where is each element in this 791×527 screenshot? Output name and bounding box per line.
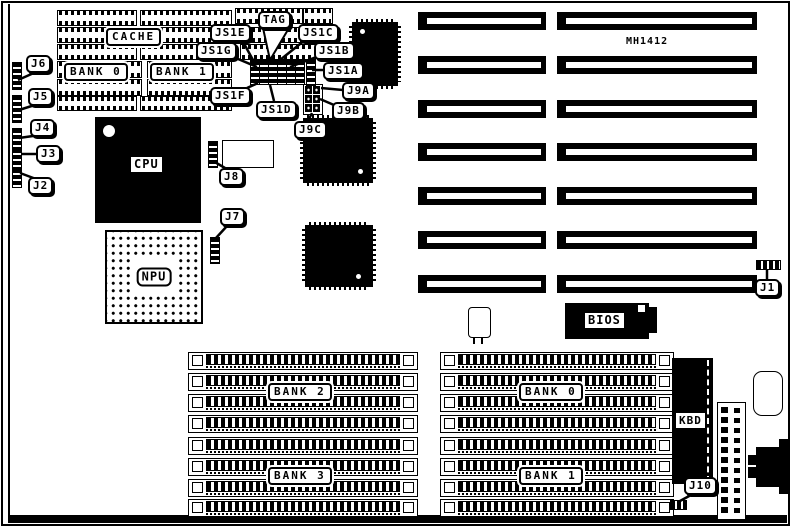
jumper-js1a (306, 59, 316, 86)
cache-bank1-label: BANK 1 (150, 63, 214, 81)
callout-j9c: J9C (294, 121, 327, 139)
isa-slot (418, 275, 546, 293)
callout-j1: J1 (755, 279, 780, 297)
qfp-chip (305, 225, 373, 287)
callout-j2: J2 (28, 177, 53, 195)
isa-slot (557, 275, 757, 293)
jumper-j3 (12, 148, 22, 168)
motherboard-diagram: CPU NPU MH1412 BIOS (0, 0, 791, 527)
jumper-j2 (12, 168, 22, 188)
simm-bank1-label: BANK 1 (519, 467, 583, 485)
simm-socket (440, 352, 674, 370)
cache-bank0-label: BANK 0 (64, 63, 128, 81)
connector-outline (753, 371, 783, 416)
callout-j3: J3 (36, 145, 61, 163)
simm-socket (188, 415, 418, 433)
bios-chip-tab (649, 307, 657, 333)
jumper-j1 (756, 260, 781, 270)
jumper-j10 (670, 500, 687, 510)
callout-js1g: JS1G (196, 42, 237, 60)
cache-label: CACHE (106, 28, 161, 46)
isa-slot (418, 187, 546, 205)
isa-slot (418, 143, 546, 161)
pin-header (717, 402, 746, 520)
jumper-j8 (208, 141, 218, 168)
callout-js1b: JS1B (314, 42, 355, 60)
keyboard-connector (756, 447, 789, 487)
jumper-j4 (12, 128, 22, 148)
simm-socket (440, 499, 674, 517)
isa-slot (557, 12, 757, 30)
simm-socket (188, 437, 418, 455)
connector-pin (748, 467, 757, 478)
jumper-js1 (295, 60, 305, 85)
isa-slot (557, 56, 757, 74)
jumper-j5 (12, 95, 22, 123)
pin1-marker (103, 125, 115, 137)
board-model-text: MH1412 (626, 36, 668, 47)
callout-j5: J5 (28, 88, 53, 106)
simm-socket (440, 415, 674, 433)
callout-js1d: JS1D (256, 101, 297, 119)
isa-slot (557, 143, 757, 161)
dip-chip (57, 44, 137, 60)
callout-js1e: JS1E (210, 24, 251, 42)
jumper-j7 (210, 237, 220, 264)
isa-slot (418, 12, 546, 30)
callout-js1a: JS1A (323, 62, 364, 80)
npu-socket: NPU (105, 230, 203, 324)
callout-j8: J8 (219, 168, 244, 186)
bios-label: BIOS (584, 312, 625, 329)
jumper-block-j9 (303, 84, 323, 115)
dip-chip (57, 96, 137, 111)
callout-js1c: JS1C (298, 24, 339, 42)
callout-tag: TAG (258, 11, 291, 29)
dip-chip (57, 10, 137, 26)
callout-j4: J4 (30, 119, 55, 137)
callout-j9b: J9B (332, 102, 365, 120)
simm-bank0-label: BANK 0 (519, 383, 583, 401)
isa-slot (418, 100, 546, 118)
isa-slot (557, 100, 757, 118)
isa-slot (418, 56, 546, 74)
simm-socket (188, 499, 418, 517)
simm-socket (440, 437, 674, 455)
simm-socket (188, 352, 418, 370)
kbd-label: KBD (675, 412, 706, 429)
dip-chip (240, 44, 316, 60)
isa-slot (557, 187, 757, 205)
isa-slot (557, 231, 757, 249)
callout-j9a: J9A (342, 82, 375, 100)
crystal (468, 307, 491, 338)
npu-label: NPU (137, 268, 172, 287)
callout-j6: J6 (26, 55, 51, 73)
dip-chip (303, 8, 333, 24)
jumper-j6 (12, 62, 22, 90)
dip-chip (57, 79, 142, 96)
callout-j7: J7 (220, 208, 245, 226)
cpu-label: CPU (131, 157, 162, 172)
connector-pin (748, 455, 757, 465)
keyboard-connector-step (779, 439, 789, 447)
callout-j10: J10 (684, 477, 717, 495)
callout-js1f: JS1F (210, 87, 251, 105)
keyboard-connector-step (779, 487, 789, 494)
oscillator (222, 140, 274, 168)
simm-bank3-label: BANK 3 (268, 467, 332, 485)
simm-bank2-label: BANK 2 (268, 383, 332, 401)
isa-slot (418, 231, 546, 249)
board-edge-left (8, 4, 10, 519)
